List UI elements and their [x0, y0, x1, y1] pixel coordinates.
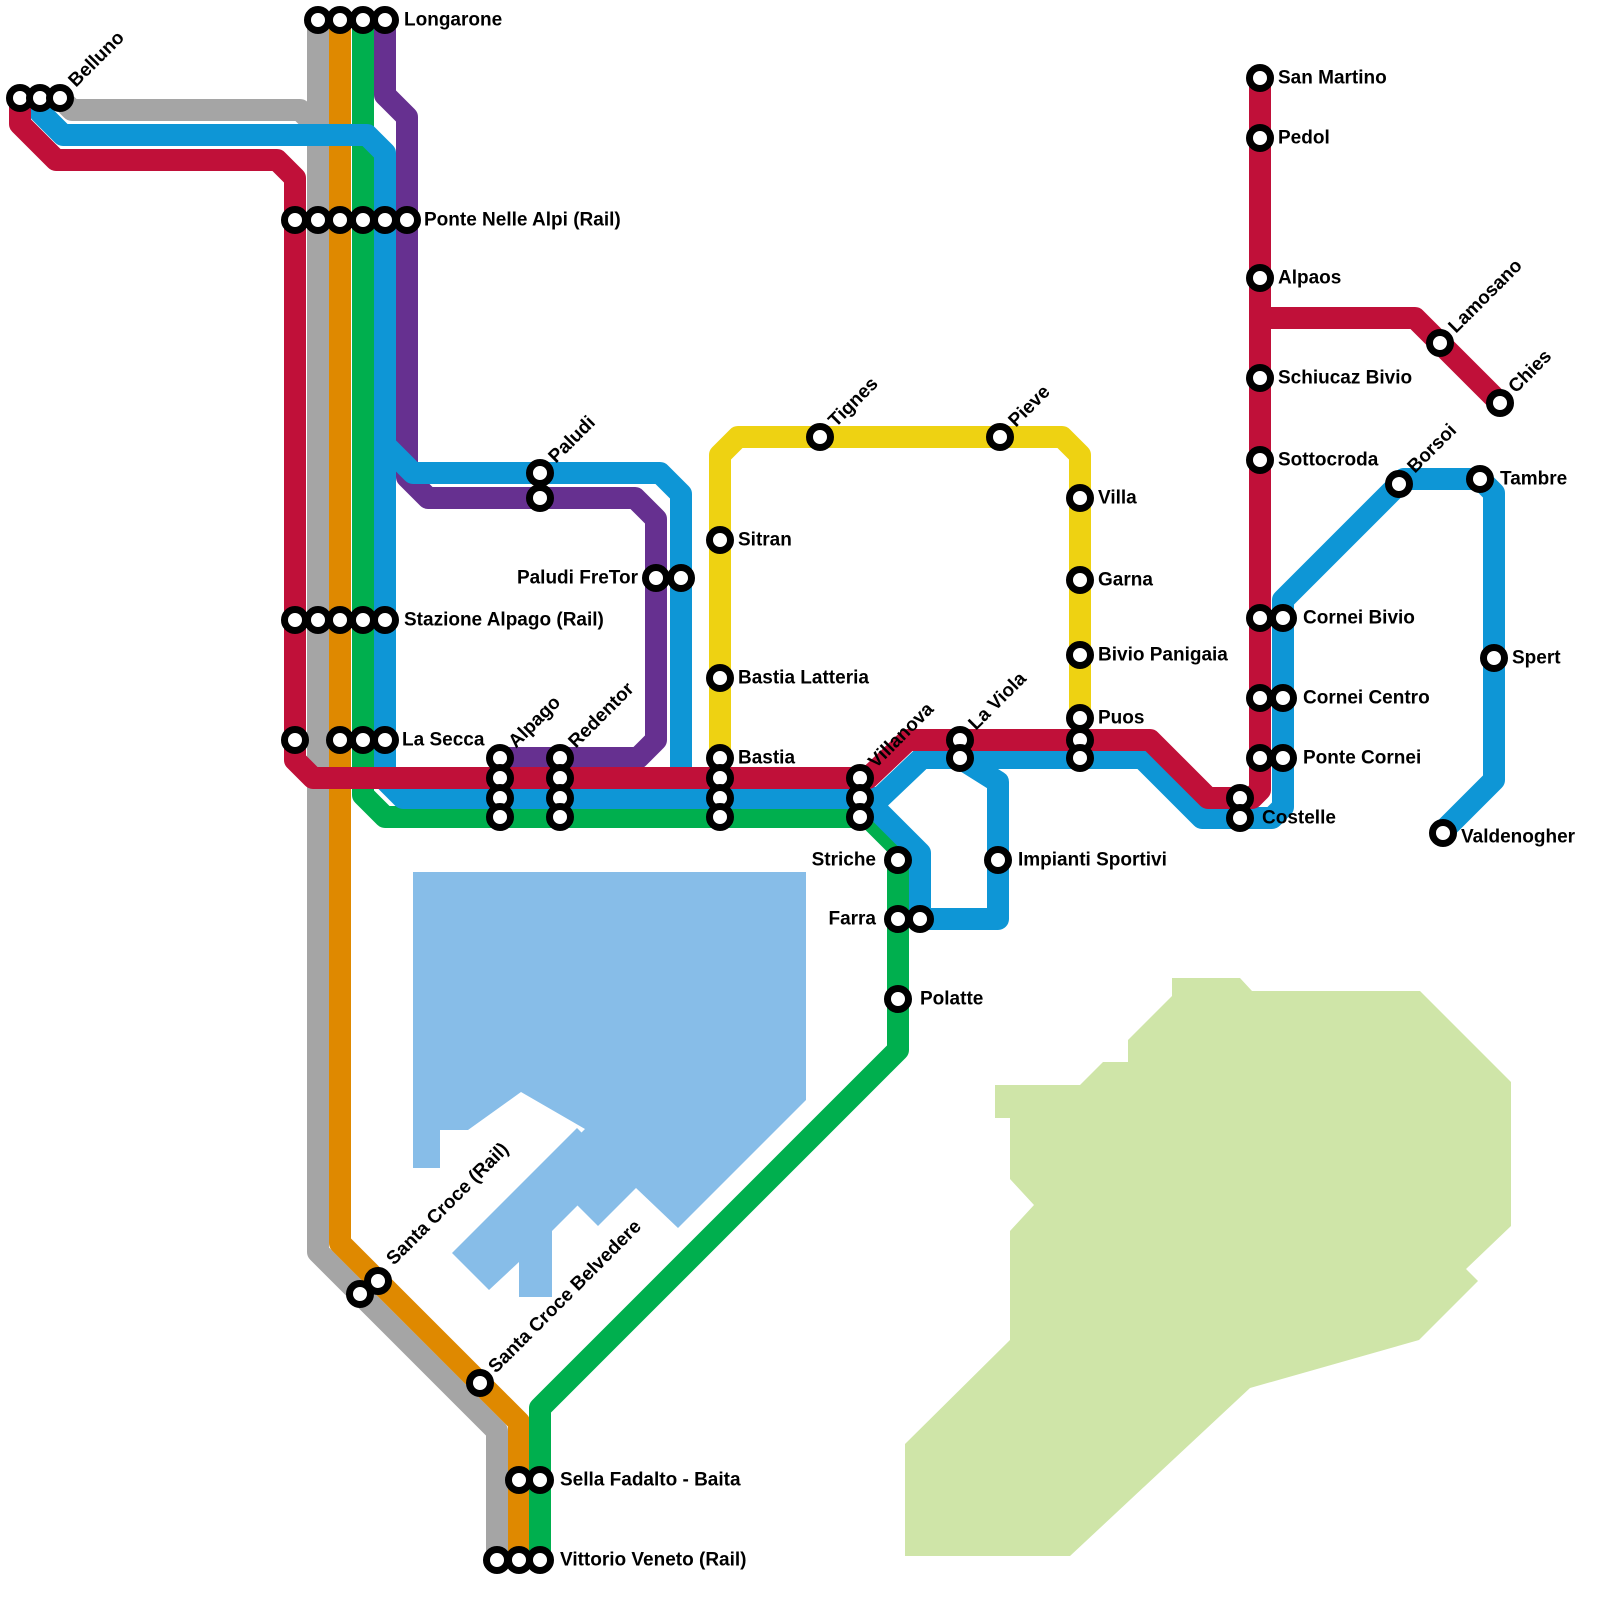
station-garna: Garna — [1070, 570, 1154, 591]
station-label: Puos — [1098, 708, 1144, 729]
station-label: Ponte Cornei — [1303, 748, 1421, 769]
station-label: Pieve — [1005, 381, 1055, 431]
yellow-line — [720, 437, 1080, 758]
station-marker — [530, 1470, 551, 1491]
station-marker — [1070, 570, 1091, 591]
station-marker — [888, 909, 909, 930]
station-marker — [308, 610, 329, 631]
area-layer — [413, 872, 1511, 1556]
station-ponte-cornei: Ponte Cornei — [1250, 748, 1422, 769]
map-canvas: LongaroneBellunoPonte Nelle Alpi (Rail)S… — [0, 0, 1600, 1600]
station-marker — [888, 989, 909, 1010]
station-label: Belluno — [65, 27, 129, 91]
station-stazione-alpago-rail: Stazione Alpago (Rail) — [285, 610, 604, 631]
station-marker — [375, 730, 396, 751]
station-marker — [397, 210, 418, 231]
station-marker — [1250, 748, 1271, 769]
station-belluno: Belluno — [10, 27, 129, 108]
station-marker — [710, 530, 731, 551]
station-label: Paludi — [545, 412, 600, 467]
station-marker — [330, 10, 351, 31]
station-marker — [1250, 68, 1271, 89]
station-label: Villa — [1098, 488, 1137, 509]
station-marker — [530, 463, 551, 484]
station-marker — [470, 1373, 491, 1394]
station-valdenogher: Valdenogher — [1433, 823, 1576, 848]
station-label: Paludi FreTor — [517, 568, 639, 589]
station-marker — [550, 807, 571, 828]
station-marker — [1273, 688, 1294, 709]
station-label: Pedol — [1278, 128, 1330, 149]
station-schiucaz-bivio: Schiucaz Bivio — [1250, 368, 1413, 389]
station-marker — [530, 1550, 551, 1571]
station-polatte: Polatte — [888, 989, 984, 1010]
station-label: Alpaos — [1278, 268, 1341, 289]
station-label: San Martino — [1278, 68, 1387, 89]
station-marker — [330, 610, 351, 631]
station-marker — [1070, 748, 1091, 769]
station-label: Sitran — [738, 530, 792, 551]
station-marker — [487, 1550, 508, 1571]
station-marker — [1250, 268, 1271, 289]
station-marker — [990, 427, 1011, 448]
station-label: Tignes — [825, 374, 883, 432]
station-marker — [285, 730, 306, 751]
station-label: Longarone — [404, 10, 502, 31]
station-villa: Villa — [1070, 488, 1138, 509]
plateau-area — [905, 978, 1511, 1556]
gray-line — [60, 98, 318, 128]
station-marker — [988, 850, 1009, 871]
blue-line — [40, 98, 1494, 831]
station-marker — [1250, 608, 1271, 629]
station-tambre: Tambre — [1470, 469, 1568, 490]
station-label: Farra — [828, 909, 876, 930]
station-label: Chies — [1505, 346, 1556, 397]
station-vittorio-veneto-rail: Vittorio Veneto (Rail) — [487, 1550, 747, 1571]
station-label: Alpago — [505, 692, 565, 752]
station-marker — [1230, 808, 1251, 829]
station-label: Tambre — [1500, 469, 1567, 490]
station-san-martino: San Martino — [1250, 68, 1387, 89]
station-marker — [1250, 128, 1271, 149]
station-label: Striche — [812, 850, 876, 871]
station-marker — [350, 1284, 371, 1305]
station-marker — [1070, 708, 1091, 729]
station-marker — [1250, 450, 1271, 471]
station-marker — [1470, 469, 1491, 490]
station-farra: Farra — [828, 909, 930, 930]
station-marker — [1250, 688, 1271, 709]
station-label: Bivio Panigaia — [1098, 645, 1228, 666]
station-label: La Secca — [402, 730, 485, 751]
station-marker — [810, 427, 831, 448]
station-marker — [530, 488, 551, 509]
station-marker — [330, 730, 351, 751]
station-marker — [375, 10, 396, 31]
station-marker — [1490, 393, 1511, 414]
station-marker — [1389, 474, 1410, 495]
station-marker — [308, 10, 329, 31]
station-impianti-sportivi: Impianti Sportivi — [988, 850, 1167, 871]
station-marker — [671, 568, 692, 589]
station-cornei-centro: Cornei Centro — [1250, 688, 1430, 709]
station-marker — [353, 10, 374, 31]
station-spert: Spert — [1484, 648, 1562, 669]
station-marker — [285, 610, 306, 631]
station-label: Costelle — [1262, 808, 1336, 829]
station-marker — [910, 909, 931, 930]
station-label: Schiucaz Bivio — [1278, 368, 1412, 389]
station-pedol: Pedol — [1250, 128, 1330, 149]
transit-map: LongaroneBellunoPonte Nelle Alpi (Rail)S… — [0, 0, 1600, 1600]
station-label: Vittorio Veneto (Rail) — [560, 1550, 747, 1571]
station-marker — [1433, 823, 1454, 844]
station-marker — [888, 850, 909, 871]
station-bastia-latteria: Bastia Latteria — [710, 668, 870, 689]
station-striche: Striche — [812, 850, 909, 871]
station-sella-fadalto-baita: Sella Fadalto - Baita — [509, 1470, 741, 1491]
station-marker — [646, 568, 667, 589]
station-marker — [285, 210, 306, 231]
station-marker — [375, 610, 396, 631]
station-label: Polatte — [920, 989, 983, 1010]
station-marker — [1273, 608, 1294, 629]
station-marker — [1070, 645, 1091, 666]
station-marker — [1430, 333, 1451, 354]
station-label: Impianti Sportivi — [1018, 850, 1167, 871]
purple-line — [385, 20, 656, 758]
station-marker — [710, 668, 731, 689]
station-label: La Viola — [965, 668, 1031, 734]
station-label: Cornei Centro — [1303, 688, 1430, 709]
station-label: Lamosano — [1445, 255, 1527, 337]
station-lamosano: Lamosano — [1430, 255, 1527, 353]
station-chies: Chies — [1490, 346, 1557, 414]
station-label: Spert — [1512, 648, 1561, 669]
station-alpaos: Alpaos — [1250, 268, 1342, 289]
station-marker — [950, 748, 971, 769]
station-label: Redentor — [565, 678, 639, 752]
station-cornei-bivio: Cornei Bivio — [1250, 608, 1415, 629]
station-marker — [1070, 488, 1091, 509]
station-label: Ponte Nelle Alpi (Rail) — [424, 210, 621, 231]
station-label: Bastia Latteria — [738, 668, 869, 689]
station-marker — [353, 730, 374, 751]
station-marker — [308, 210, 329, 231]
station-paludi-fretor: Paludi FreTor — [517, 568, 692, 589]
station-label: Sottocroda — [1278, 450, 1379, 471]
station-marker — [1273, 748, 1294, 769]
station-marker — [353, 610, 374, 631]
station-label: Garna — [1098, 570, 1153, 591]
station-marker — [353, 210, 374, 231]
station-sitran: Sitran — [710, 530, 792, 551]
station-marker — [1250, 368, 1271, 389]
station-label: Cornei Bivio — [1303, 608, 1415, 629]
station-sottocroda: Sottocroda — [1250, 450, 1379, 471]
station-marker — [710, 807, 731, 828]
station-longarone: Longarone — [308, 10, 503, 31]
station-bivio-panigaia: Bivio Panigaia — [1070, 645, 1229, 666]
station-label: Valdenogher — [1461, 827, 1576, 848]
station-label: Sella Fadalto - Baita — [560, 1470, 741, 1491]
station-ponte-nelle-alpi-rail: Ponte Nelle Alpi (Rail) — [285, 210, 621, 231]
station-marker — [850, 807, 871, 828]
station-marker — [1484, 648, 1505, 669]
station-label: Bastia — [738, 748, 795, 769]
station-marker — [330, 210, 351, 231]
station-marker — [490, 807, 511, 828]
station-label: Stazione Alpago (Rail) — [404, 610, 604, 631]
station-marker — [50, 88, 71, 109]
station-marker — [375, 210, 396, 231]
